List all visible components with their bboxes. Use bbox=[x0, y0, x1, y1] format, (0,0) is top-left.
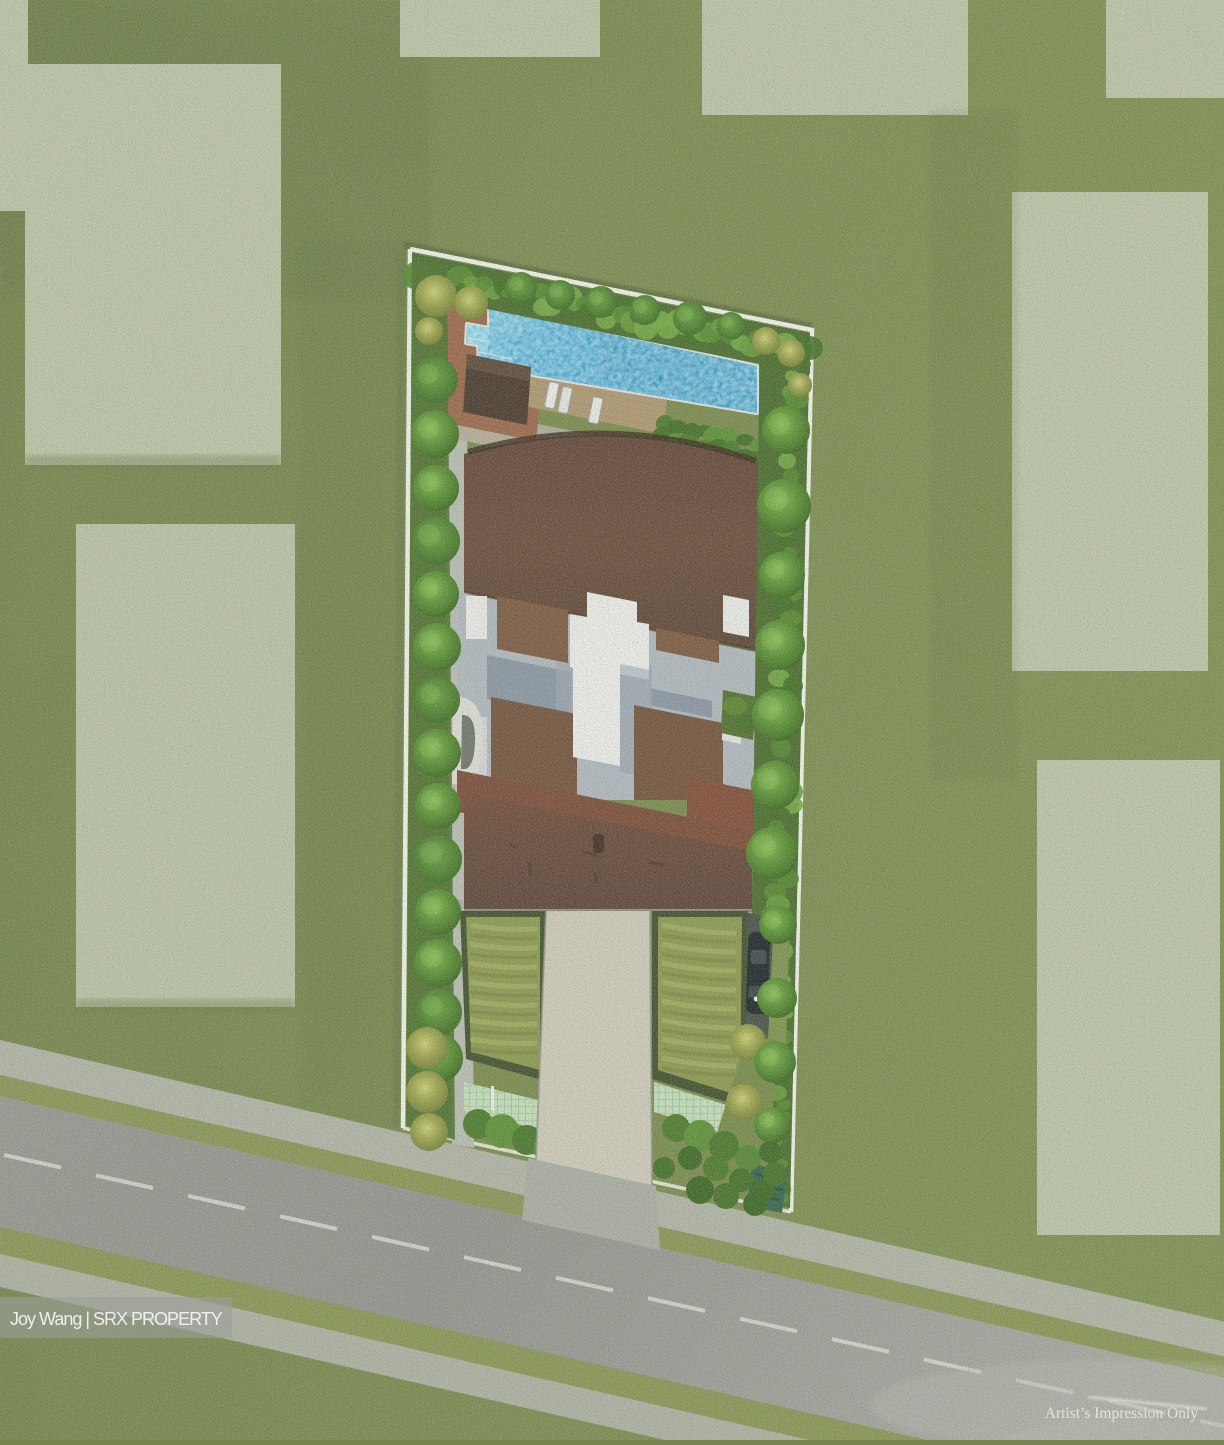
svg-text:Artist’s Impression Only: Artist’s Impression Only bbox=[1045, 1405, 1199, 1422]
svg-text:Joy Wang | SRX PROPERTY: Joy Wang | SRX PROPERTY bbox=[10, 1309, 223, 1329]
